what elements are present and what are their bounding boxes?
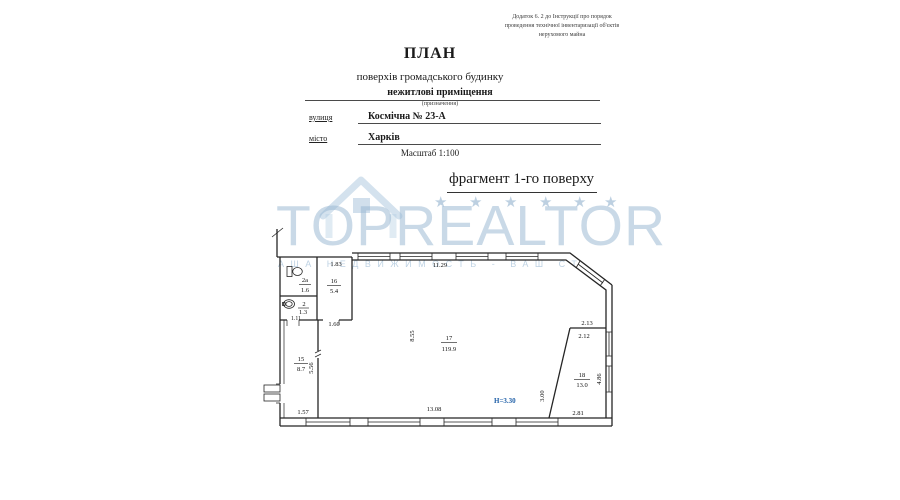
dimension-label: 3.00 (539, 390, 546, 401)
dimension-label: 4.86 (596, 373, 603, 385)
city-underline (358, 144, 601, 145)
appendix-line: проведення технічної інвентаризації об'є… (486, 22, 638, 31)
street-value: Космічна № 23-А (368, 111, 446, 122)
appendix-line: нерухомого майна (486, 31, 638, 40)
street-underline (358, 123, 601, 124)
dimension-label: 2.12 (578, 333, 589, 340)
room-number-label: 17 (446, 335, 453, 342)
room-area-label: 5.4 (330, 288, 339, 295)
dimension-label: 1.11 (291, 316, 301, 322)
dimension-label: 1.60 (328, 321, 339, 328)
dimension-label: 1.57 (297, 409, 309, 416)
room-number-label: 15 (298, 356, 305, 363)
floor-plan-drawing: 2а 1.6 2 1.3 16 5.4 15 8.7 17 119.9 18 1… (255, 213, 635, 448)
appendix-line: Додаток 6. 2 до Інструкції про порядок (486, 13, 638, 22)
dimension-label: 5.56 (308, 362, 315, 374)
room-area-label: 1.3 (299, 309, 307, 316)
plan-walls (264, 228, 612, 426)
dimension-label: 2.81 (572, 410, 583, 417)
room-number-label: 18 (579, 372, 586, 379)
page-title: ПЛАН (270, 45, 590, 63)
room-area-label: 13.0 (576, 382, 587, 389)
appendix-note: Додаток 6. 2 до Інструкції про порядок п… (486, 13, 638, 40)
ceiling-height-note: Н=3.30 (494, 397, 516, 405)
toilet-icon (287, 267, 302, 277)
room-area-label: 8.7 (297, 366, 306, 373)
street-label: вулиця (309, 113, 332, 122)
purpose-caption: (призначення) (370, 101, 510, 107)
dimension-label: 11.29 (433, 262, 447, 269)
room-number-label: 16 (331, 278, 338, 285)
dimension-label: 13.08 (427, 406, 442, 413)
fragment-title: фрагмент 1-го поверху (449, 171, 594, 188)
sink-icon (283, 300, 295, 309)
dimension-label: 2.13 (581, 320, 592, 327)
room-number-label: 2а (302, 277, 308, 284)
scale-note: Масштаб 1:100 (330, 148, 530, 158)
dimension-label: 1.83 (330, 261, 341, 268)
room-area-label: 1.6 (301, 287, 310, 294)
room-area-label: 119.9 (442, 346, 456, 353)
city-value: Харків (368, 132, 400, 143)
scanned-floor-plan-document: Додаток 6. 2 до Інструкції про порядок п… (0, 0, 900, 500)
dimension-label: 8.55 (409, 330, 416, 341)
page-subtitle: поверхів громадського будинку (270, 71, 590, 83)
purpose-value: нежитлові приміщення (290, 87, 590, 98)
room-number-label: 2 (302, 301, 305, 308)
city-label: місто (309, 134, 327, 143)
